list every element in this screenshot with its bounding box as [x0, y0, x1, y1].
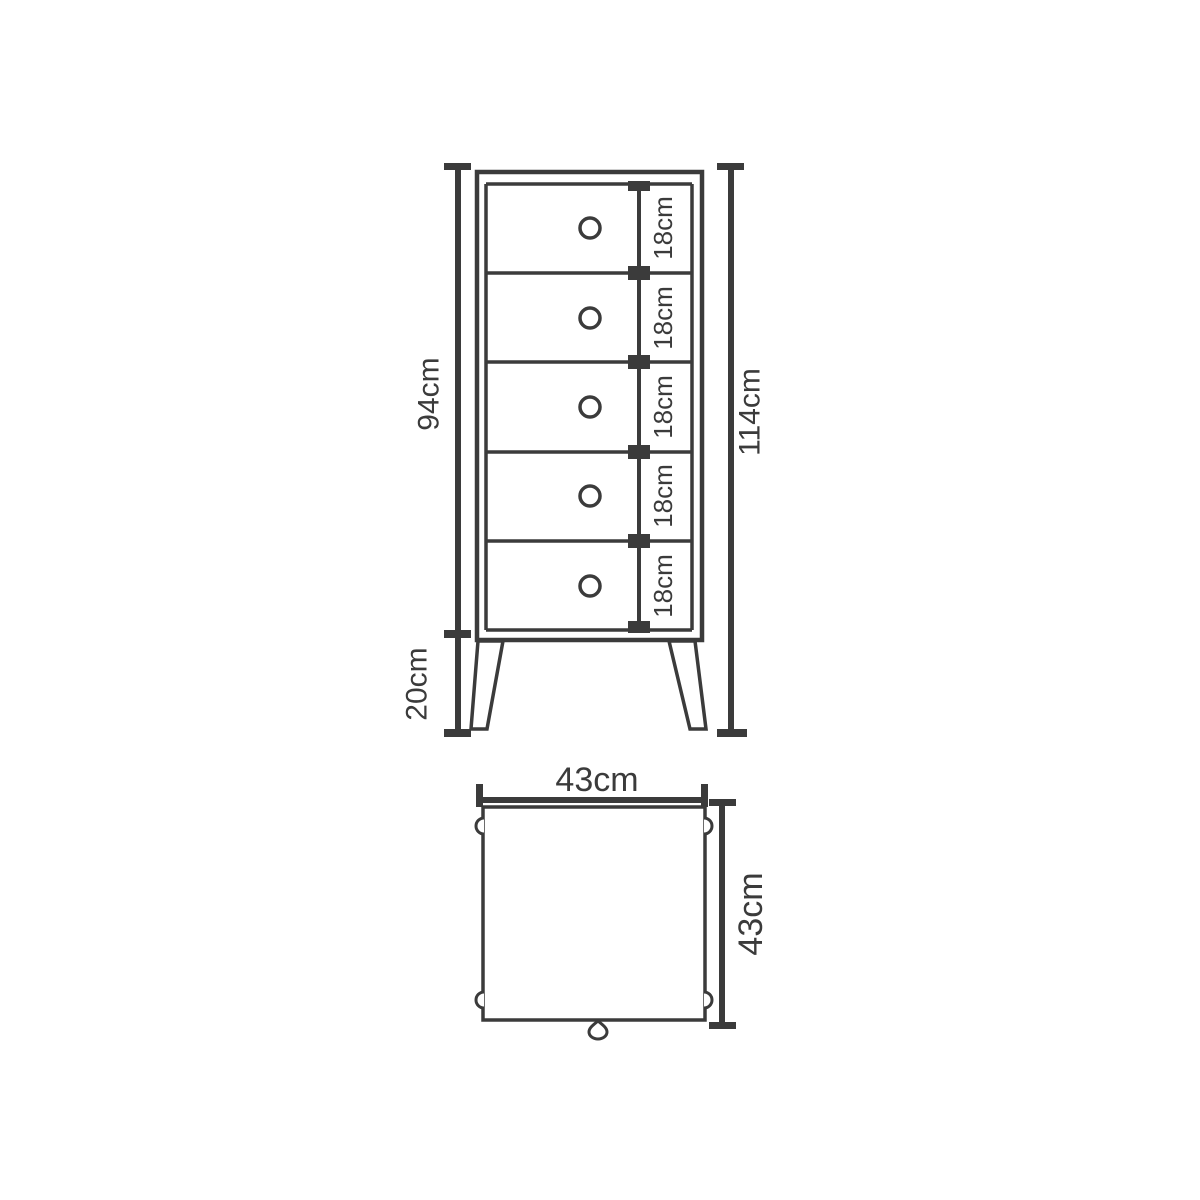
depth-label: 43cm: [732, 872, 770, 955]
leg-bump-top-left: [476, 818, 484, 834]
top-view: 43cm 43cm: [476, 761, 770, 1039]
body-height-label: 94cm: [413, 357, 446, 430]
drawer-height-label-1: 18cm: [648, 196, 678, 260]
measurement-tick-2: [628, 355, 650, 369]
total-height-label: 114cm: [734, 368, 767, 456]
front-view: 18cm 18cm 18cm 18cm 18cm 94cm 20cm 114cm: [401, 163, 767, 737]
measurement-tick-1: [628, 266, 650, 280]
total-height-tick-top: [717, 163, 744, 170]
front-right-leg: [669, 641, 706, 729]
top-view-outline: [483, 807, 705, 1020]
drawer-knob-5: [580, 576, 600, 596]
furniture-dimension-drawing: 18cm 18cm 18cm 18cm 18cm 94cm 20cm 114cm: [0, 0, 1200, 1200]
measurement-tick-bottom: [628, 621, 650, 633]
diagram-canvas: 18cm 18cm 18cm 18cm 18cm 94cm 20cm 114cm: [0, 0, 1200, 1200]
leg-height-tick-bottom: [444, 729, 471, 737]
drawer-height-label-4: 18cm: [648, 464, 678, 528]
drawer-knob-3: [580, 397, 600, 417]
measurement-tick-3: [628, 445, 650, 459]
total-height-tick-bottom: [717, 729, 747, 737]
drawer-knob-1: [580, 218, 600, 238]
leg-bump-bottom-left: [476, 992, 484, 1008]
total-height-dimension: 114cm: [717, 163, 767, 737]
width-dimension: 43cm: [476, 761, 708, 807]
depth-dimension: 43cm: [709, 799, 770, 1029]
leg-bump-top-right: [704, 818, 712, 834]
top-view-knob: [589, 1021, 607, 1039]
depth-tick-top: [709, 799, 736, 806]
measurement-tick-4: [628, 534, 650, 548]
drawer-height-label-5: 18cm: [648, 554, 678, 618]
leg-height-dimension: 20cm: [401, 634, 472, 737]
front-left-leg: [471, 641, 503, 729]
body-height-tick-top: [444, 163, 471, 170]
leg-bump-bottom-right: [704, 992, 712, 1008]
drawer-knob-2: [580, 308, 600, 328]
leg-height-label: 20cm: [401, 647, 434, 720]
measurement-tick-top: [628, 181, 650, 191]
depth-tick-bottom: [709, 1022, 736, 1029]
body-height-dimension: 94cm: [413, 163, 472, 638]
width-label: 43cm: [555, 761, 638, 799]
drawer-height-label-3: 18cm: [648, 375, 678, 439]
width-tick-left: [476, 784, 483, 807]
drawer-height-label-2: 18cm: [648, 286, 678, 350]
drawer-knob-4: [580, 486, 600, 506]
width-tick-right: [701, 784, 708, 807]
